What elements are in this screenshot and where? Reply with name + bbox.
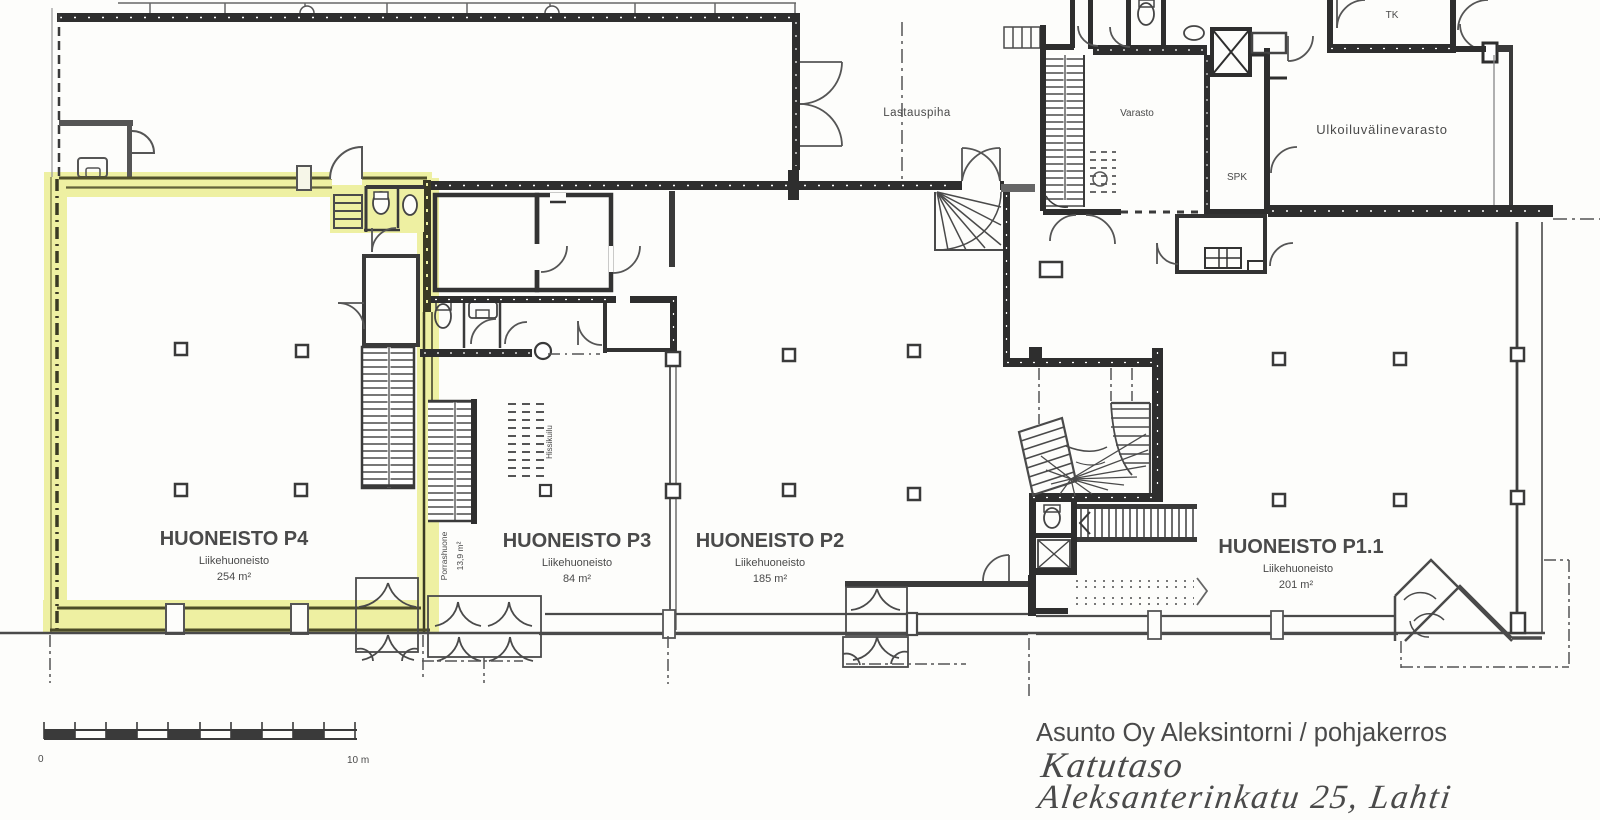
- svg-text:SPK: SPK: [1227, 172, 1247, 183]
- svg-text:Hissikuilu: Hissikuilu: [545, 425, 554, 459]
- svg-text:HUONEISTO P1.1: HUONEISTO P1.1: [1218, 536, 1383, 558]
- svg-text:13,9 m²: 13,9 m²: [455, 541, 465, 570]
- svg-text:10 m: 10 m: [347, 755, 369, 766]
- svg-text:84 m²: 84 m²: [563, 573, 591, 585]
- svg-text:Liikehuoneisto: Liikehuoneisto: [542, 557, 612, 569]
- svg-text:0: 0: [38, 754, 44, 765]
- svg-text:TK: TK: [1386, 10, 1399, 21]
- svg-text:185 m²: 185 m²: [753, 573, 788, 585]
- svg-text:Liikehuoneisto: Liikehuoneisto: [199, 555, 269, 567]
- svg-text:HUONEISTO P2: HUONEISTO P2: [696, 530, 845, 552]
- svg-text:Lastauspiha: Lastauspiha: [883, 107, 951, 119]
- svg-text:Varasto: Varasto: [1120, 108, 1154, 119]
- svg-text:Ulkoiluvälinevarasto: Ulkoiluvälinevarasto: [1316, 122, 1448, 137]
- svg-text:201 m²: 201 m²: [1279, 579, 1314, 591]
- svg-text:Porrashuone: Porrashuone: [439, 531, 449, 580]
- svg-text:Aleksanterinkatu 25, Lahti: Aleksanterinkatu 25, Lahti: [1034, 779, 1455, 816]
- svg-text:Liikehuoneisto: Liikehuoneisto: [735, 557, 805, 569]
- svg-text:Liikehuoneisto: Liikehuoneisto: [1263, 563, 1333, 575]
- svg-text:254 m²: 254 m²: [217, 571, 252, 583]
- svg-text:HUONEISTO P3: HUONEISTO P3: [503, 530, 652, 552]
- svg-text:HUONEISTO P4: HUONEISTO P4: [160, 528, 309, 550]
- svg-text:Asunto Oy Aleksintorni / pohja: Asunto Oy Aleksintorni / pohjakerros: [1036, 719, 1447, 747]
